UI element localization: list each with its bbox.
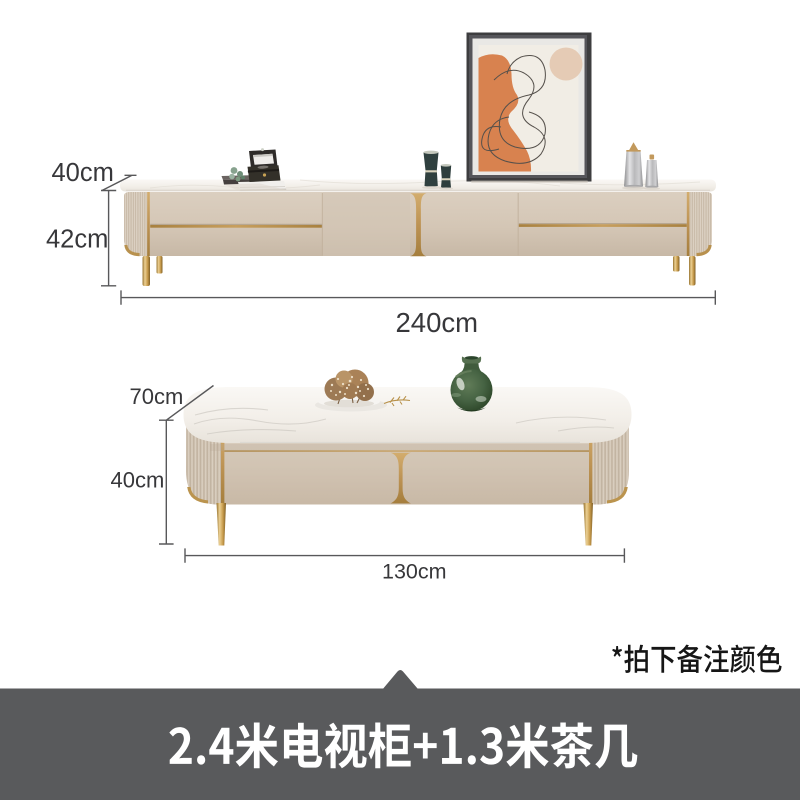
svg-text:240cm: 240cm xyxy=(396,307,479,338)
svg-text:42cm: 42cm xyxy=(46,226,108,254)
svg-text:40cm: 40cm xyxy=(111,468,165,493)
svg-text:70cm: 70cm xyxy=(130,384,184,409)
svg-text:40cm: 40cm xyxy=(52,159,114,187)
svg-text:130cm: 130cm xyxy=(382,560,447,584)
